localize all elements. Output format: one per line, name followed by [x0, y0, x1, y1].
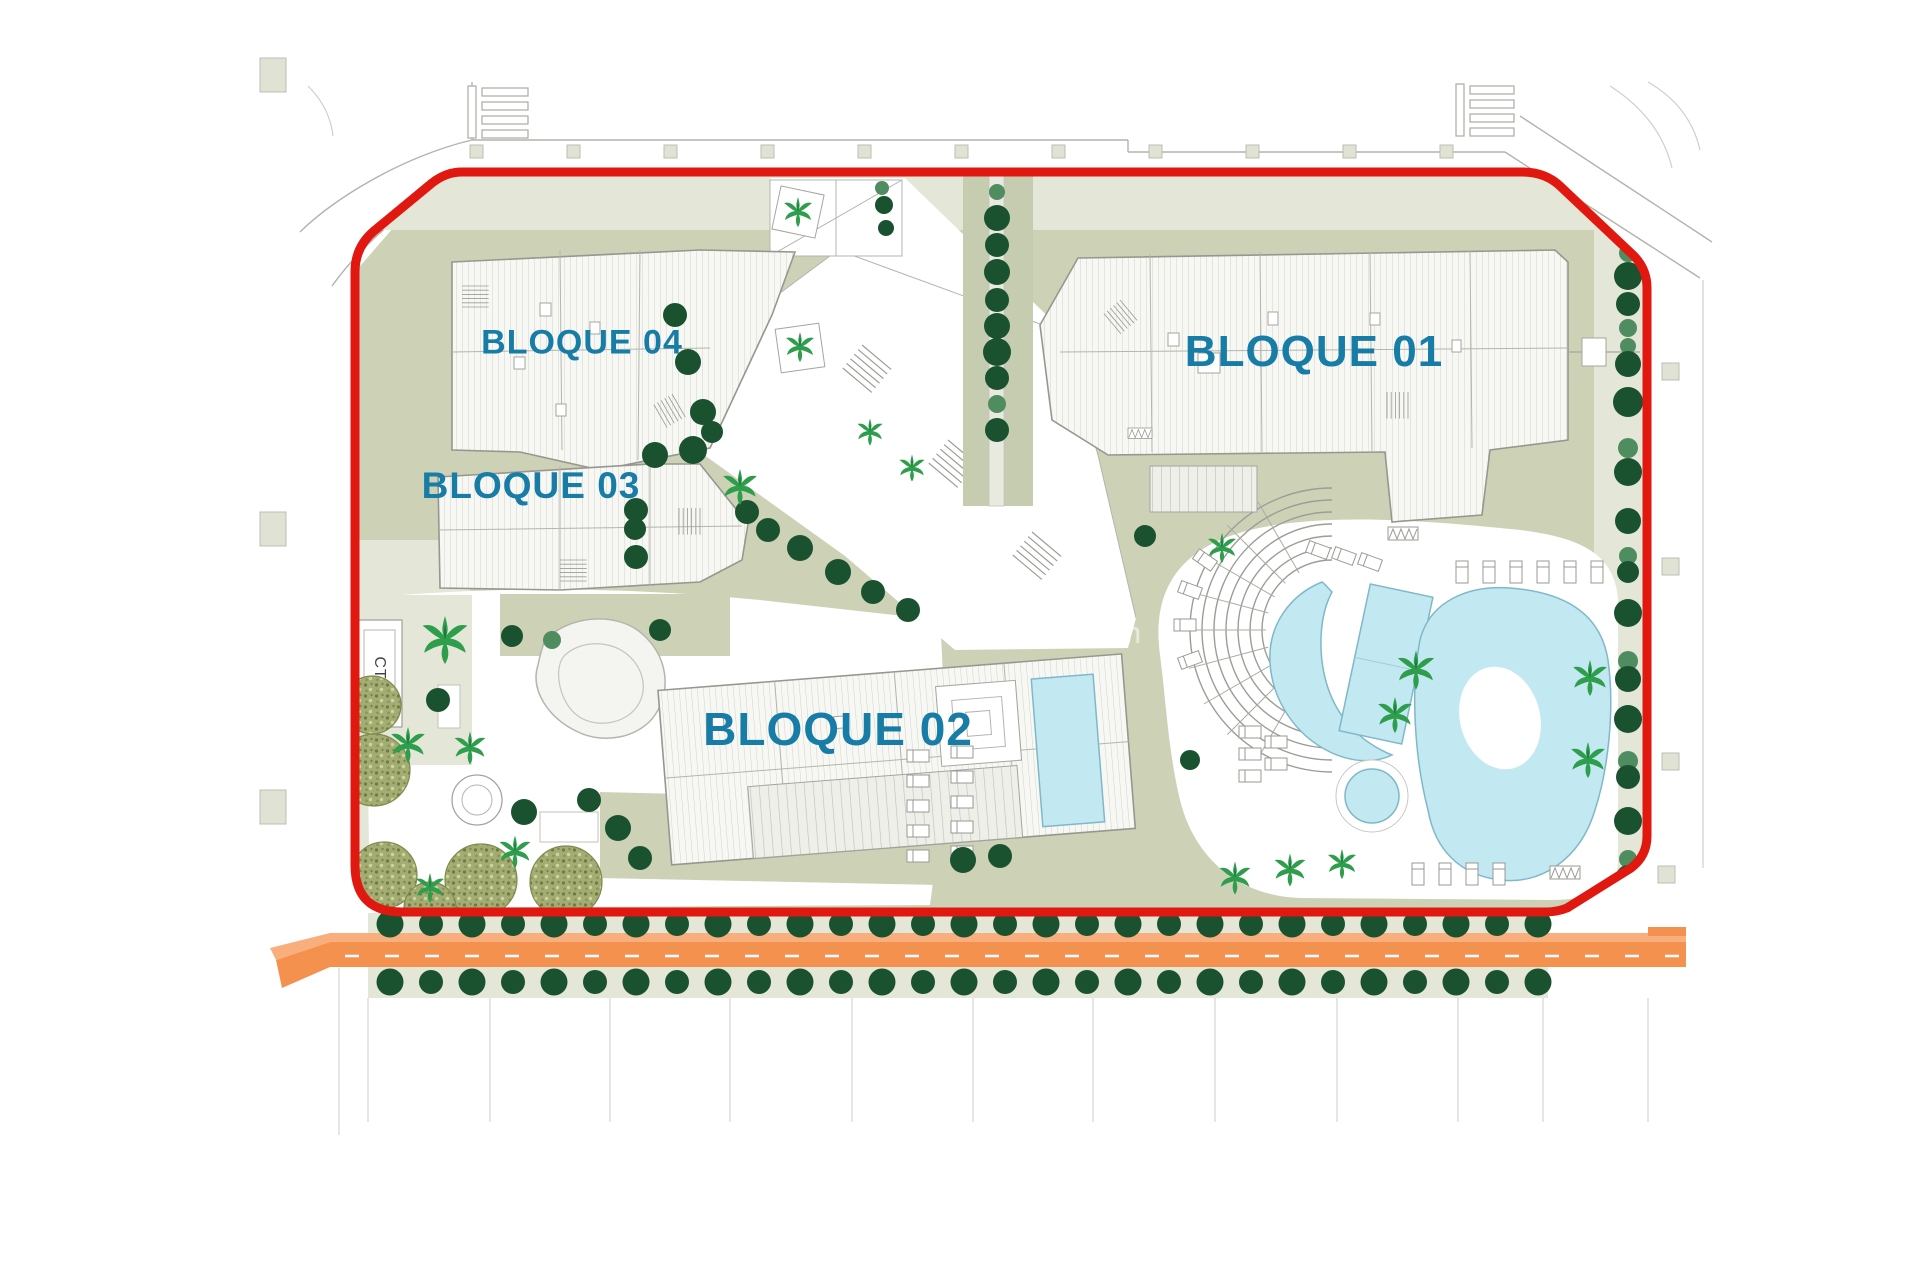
tree-icon [1615, 508, 1641, 534]
tree-icon [1361, 969, 1388, 996]
transformer-label: CT [370, 656, 388, 679]
round-spa-pool [1345, 769, 1399, 823]
sun-lounger [1564, 561, 1576, 583]
sun-lounger [907, 825, 929, 837]
tree-icon [993, 970, 1017, 994]
tree-icon [985, 418, 1009, 442]
tree-icon [911, 970, 935, 994]
tree-icon [1613, 387, 1643, 417]
crosswalk-top-right [1456, 84, 1514, 136]
tree-icon [1615, 666, 1641, 692]
tree-icon [1033, 969, 1060, 996]
bollard-square [664, 145, 677, 158]
tree-icon [1443, 969, 1470, 996]
tree-icon [985, 233, 1009, 257]
tree-icon [459, 969, 486, 996]
vegetation-marker [1128, 428, 1152, 438]
tree-icon [735, 500, 759, 524]
tree-icon [705, 969, 732, 996]
tree-icon [577, 788, 601, 812]
sun-lounger [1265, 736, 1287, 748]
tree-icon [501, 970, 525, 994]
tree-icon [787, 535, 813, 561]
bloque-02-pool [1031, 674, 1104, 826]
tree-icon [583, 970, 607, 994]
site-plan-page: BLOQUE 04 BLOQUE 03 BLOQUE 01 BLOQUE 02 … [0, 0, 1920, 1280]
vegetation-marker [1550, 866, 1580, 879]
sun-lounger [1493, 863, 1505, 885]
tree-icon [1614, 705, 1642, 733]
pergola-strip [1150, 466, 1257, 512]
crosswalk-top-left [468, 86, 528, 138]
tree-icon [787, 969, 814, 996]
bollard-square [1149, 145, 1162, 158]
tree-icon [543, 631, 561, 649]
tree-icon [1279, 969, 1306, 996]
tree-icon [1115, 969, 1142, 996]
tree-icon [1614, 599, 1642, 627]
tree-icon [1617, 561, 1639, 583]
tree-icon [605, 815, 631, 841]
tree-icon [875, 196, 893, 214]
sun-lounger [1239, 748, 1261, 760]
sun-lounger [951, 796, 973, 808]
tree-icon [642, 442, 668, 468]
tree-icon [825, 559, 851, 585]
tree-icon [426, 688, 450, 712]
tree-icon [829, 970, 853, 994]
bloque-04-label: BLOQUE 04 [481, 324, 683, 363]
tree-icon [541, 969, 568, 996]
vegetation-marker [1388, 527, 1418, 540]
tree-icon [983, 338, 1011, 366]
tree-icon [875, 181, 889, 195]
tree-icon [501, 625, 523, 647]
sun-lounger [1239, 770, 1261, 782]
tree-icon [419, 970, 443, 994]
bloque-01-label: BLOQUE 01 [1185, 327, 1443, 377]
tree-icon [679, 436, 707, 464]
sun-lounger [1174, 619, 1196, 631]
tree-icon [1614, 458, 1642, 486]
tree-icon [1180, 750, 1200, 770]
tree-icon [1619, 319, 1637, 337]
bollard-square [1343, 145, 1356, 158]
tree-icon [1239, 970, 1263, 994]
sun-lounger [1456, 561, 1468, 583]
garden-circle-feature [452, 775, 502, 825]
tree-icon [951, 969, 978, 996]
bollard-square [1246, 145, 1259, 158]
tree-icon [1618, 438, 1638, 458]
tree-icon [377, 969, 404, 996]
tree-icon [984, 313, 1010, 339]
tree-icon [985, 288, 1009, 312]
tree-icon [1075, 970, 1099, 994]
sun-lounger [951, 821, 973, 833]
tree-icon [1615, 351, 1641, 377]
tree-icon [878, 220, 894, 236]
tree-icon [624, 518, 646, 540]
tree-icon [1197, 969, 1224, 996]
tree-icon [984, 205, 1010, 231]
tree-icon [1134, 525, 1156, 547]
sun-lounger [1510, 561, 1522, 583]
bollard-square [761, 145, 774, 158]
sun-lounger [907, 775, 929, 787]
tree-icon [950, 847, 976, 873]
tree-icon [649, 619, 671, 641]
watermark-text: www.··········sol.com [806, 617, 1144, 651]
bloque-02-label: BLOQUE 02 [703, 702, 973, 756]
bollard-square [1052, 145, 1065, 158]
site-interior [338, 172, 1650, 934]
bloque-02-building [658, 654, 1135, 865]
tree-icon [1403, 970, 1427, 994]
tree-icon [1614, 807, 1642, 835]
sun-lounger [1412, 863, 1424, 885]
tree-row-south-of-road [377, 969, 1552, 996]
sun-lounger [1265, 758, 1287, 770]
tree-icon [1321, 970, 1345, 994]
tree-icon [988, 844, 1012, 868]
tree-icon [869, 969, 896, 996]
tree-icon [985, 366, 1009, 390]
sun-lounger [1591, 561, 1603, 583]
sun-lounger [1483, 561, 1495, 583]
tree-icon [628, 846, 652, 870]
tree-icon [984, 259, 1010, 285]
south-street [270, 911, 1686, 1136]
bollard-square [955, 145, 968, 158]
bloque-03-label: BLOQUE 03 [422, 465, 641, 507]
tree-icon [511, 799, 537, 825]
sun-lounger [1537, 561, 1549, 583]
tree-icon [701, 421, 723, 443]
bollard-square [567, 145, 580, 158]
tree-icon [1616, 292, 1640, 316]
tree-icon [665, 970, 689, 994]
sun-lounger [951, 771, 973, 783]
tree-icon [989, 184, 1005, 200]
sun-lounger [907, 800, 929, 812]
sun-lounger [1439, 863, 1451, 885]
tree-icon [1157, 970, 1181, 994]
tree-icon [1485, 970, 1509, 994]
tree-icon [1525, 969, 1552, 996]
sun-lounger [1466, 863, 1478, 885]
tree-icon [624, 545, 648, 569]
sun-lounger [1239, 726, 1261, 738]
tree-icon [623, 969, 650, 996]
tree-icon [861, 580, 885, 604]
sun-lounger [907, 850, 929, 862]
olive-tree-icon [530, 846, 602, 918]
tree-icon [756, 518, 780, 542]
pergola [540, 812, 598, 842]
bollard-square [1440, 145, 1453, 158]
bollard-square [470, 145, 483, 158]
bollard-square [858, 145, 871, 158]
olive-tree-icon [338, 734, 410, 806]
tree-icon [988, 395, 1006, 413]
tree-icon [1616, 765, 1640, 789]
tree-icon [747, 970, 771, 994]
